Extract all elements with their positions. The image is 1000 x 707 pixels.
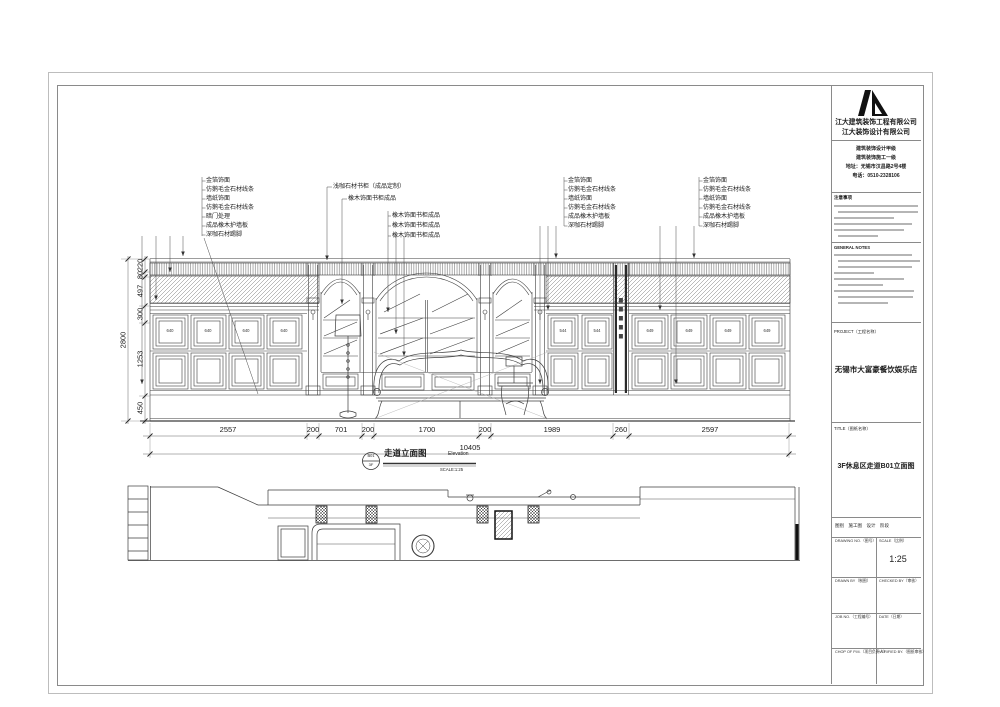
micro-text-line xyxy=(838,260,920,262)
company-name-1: 江大建筑装饰工程有限公司 xyxy=(835,120,917,127)
micro-text-line xyxy=(834,272,874,274)
verified-by-label: VERIFIED BY.（图纸审核） xyxy=(879,651,926,655)
checked-by-label: CHECKED BY（审核） xyxy=(879,580,919,584)
drawn-by-label: DRAWN BY（制图） xyxy=(835,580,871,584)
stage-row: 图别 施工图 设计 阶段 xyxy=(835,524,889,529)
divider xyxy=(831,422,921,423)
company-logo xyxy=(858,90,890,117)
date-label: DATE（日期） xyxy=(879,616,904,620)
job-no-label: JOB NO.（工程编号） xyxy=(835,616,873,620)
scale-value: 1:25 xyxy=(889,555,907,564)
micro-text-line xyxy=(838,284,883,286)
micro-text-line xyxy=(834,278,904,280)
micro-text-line xyxy=(834,223,912,225)
divider xyxy=(831,140,921,141)
credential-line: 地址：无锡市汉昌路2号4楼 xyxy=(846,165,907,170)
sheet-inner-border xyxy=(57,85,924,686)
drawing-no-label: DRAWING NO.（图号） xyxy=(835,540,876,544)
micro-text-line xyxy=(838,302,888,304)
divider xyxy=(831,517,921,518)
divider xyxy=(831,322,921,323)
project-name: 无锡市大富豪餐饮娱乐店 xyxy=(835,366,918,374)
sheet-title: 3F休息区走道B01立面图 xyxy=(837,463,914,470)
divider xyxy=(831,242,921,243)
company-name-2: 江大装饰设计有限公司 xyxy=(842,130,910,137)
notes-cn-title: 注意事项 xyxy=(834,196,852,201)
micro-text-line xyxy=(838,211,918,213)
cell-divider xyxy=(876,537,877,684)
credential-line: 建筑装饰施工一级 xyxy=(856,156,896,161)
divider xyxy=(831,192,921,193)
credential-line: 电话：0510-2328106 xyxy=(852,174,899,179)
project-label: PROJECT（工程名称） xyxy=(834,330,879,334)
title-block-left-edge xyxy=(831,86,832,684)
drawing-sheet-page: { "title_block": { "company_line1": "江大建… xyxy=(0,0,1000,707)
notes-en-title: GENERAL NOTES xyxy=(834,246,870,250)
micro-text-line xyxy=(834,254,912,256)
micro-text-line xyxy=(838,296,913,298)
micro-text-line xyxy=(838,266,912,268)
credential-line: 建筑装饰设计甲级 xyxy=(856,147,896,152)
micro-text-line xyxy=(834,205,918,207)
micro-text-line xyxy=(834,217,894,219)
micro-text-line xyxy=(834,290,914,292)
micro-text-line xyxy=(838,235,878,237)
sheet-title-label: TITLE（图纸名称） xyxy=(834,427,871,431)
scale-label: SCALE（比例） xyxy=(879,540,907,544)
micro-text-line xyxy=(834,229,904,231)
